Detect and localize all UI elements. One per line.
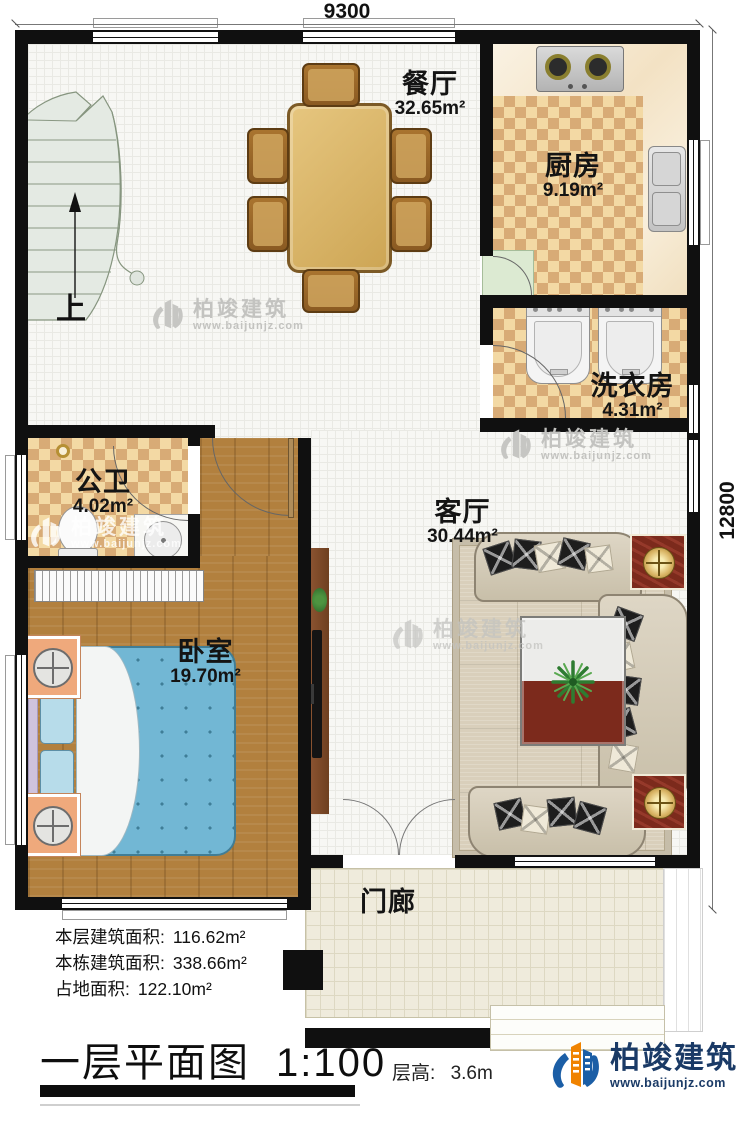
window: [515, 855, 655, 868]
sink-bowl: [652, 192, 681, 226]
stove-burner: [545, 54, 571, 80]
stove-burner: [585, 54, 611, 80]
wall: [15, 425, 215, 438]
window: [687, 440, 700, 512]
wall: [480, 295, 700, 308]
window-sill: [5, 455, 15, 540]
wall: [298, 438, 311, 910]
table-lamp-icon: [33, 806, 73, 846]
floor-plan-page: 上: [0, 0, 750, 1122]
dimension-right: 12800: [716, 443, 740, 578]
window: [15, 455, 28, 540]
room-label-bedroom: 卧室19.70m²: [148, 638, 263, 687]
dining-chair: [302, 269, 360, 313]
stove-knob: [568, 84, 573, 89]
room-label-porch: 门廊: [343, 888, 433, 916]
plan-scale: 1:100: [276, 1041, 386, 1085]
plant-icon: [549, 658, 597, 706]
shower-head-icon: [56, 444, 70, 458]
porch-side-steps: [663, 868, 703, 1032]
dining-chair: [247, 196, 289, 252]
dimension-top: 9300: [287, 0, 407, 24]
window-sill: [700, 140, 710, 245]
porch-pillar: [283, 950, 323, 990]
cabinet-plant-icon: [312, 588, 327, 612]
window: [303, 30, 455, 44]
room-label-laundry: 洗衣房4.31m²: [570, 372, 695, 421]
stairs: [18, 90, 168, 322]
window-sill: [62, 910, 287, 920]
dining-chair: [247, 128, 289, 184]
window-sill: [5, 655, 15, 845]
floor-height: 层高: 3.6m: [392, 1058, 493, 1085]
wall: [480, 308, 493, 345]
stat-floor-area: 本层建筑面积:116.62m²: [55, 924, 247, 950]
sofa-pillow: [547, 797, 578, 828]
window: [15, 655, 28, 845]
stove-knob: [582, 84, 587, 89]
stat-building-area: 本栋建筑面积:338.66m²: [55, 950, 247, 976]
wall: [15, 556, 200, 568]
dining-chair: [390, 128, 432, 184]
room-label-bathroom: 公卫4.02m²: [48, 468, 158, 517]
wall: [218, 30, 303, 44]
basin-drain: [161, 538, 166, 543]
room-label-dining: 餐厅32.65m²: [365, 70, 495, 119]
gold-lamp-icon: [643, 547, 675, 579]
wall: [455, 30, 700, 44]
wall: [188, 438, 200, 446]
sofa-pillow: [608, 742, 639, 773]
room-label-kitchen: 厨房9.19m²: [513, 152, 633, 201]
dining-chair: [302, 63, 360, 107]
window: [93, 30, 218, 44]
stairs-up-label: 上: [56, 284, 86, 328]
sink-bowl: [652, 152, 681, 186]
brand-name: 柏竣建筑: [610, 1044, 738, 1074]
brand-website: www.baijunjz.com: [610, 1077, 738, 1090]
area-stats: 本层建筑面积:116.62m² 本栋建筑面积:338.66m² 占地面积:122…: [55, 924, 247, 1002]
window-sill: [93, 18, 218, 28]
brand-footer: 柏竣建筑 www.baijunjz.com: [548, 1040, 738, 1094]
gold-lamp-icon: [644, 787, 676, 819]
dimension-line-top: [15, 24, 700, 25]
window: [687, 140, 700, 245]
window: [62, 897, 287, 910]
table-lamp-icon: [33, 648, 73, 688]
title-underline-bar: [40, 1085, 355, 1097]
room-label-living: 客厅30.44m²: [400, 498, 525, 547]
wardrobe-hanger-rack: [34, 570, 204, 602]
dimension-line-right: [712, 30, 713, 910]
dining-chair: [390, 196, 432, 252]
dining-table: [287, 103, 392, 273]
sofa-pillow: [584, 544, 613, 573]
title-underline-thin: [40, 1104, 360, 1106]
bedroom-door-leaf: [288, 438, 294, 518]
stat-footprint: 占地面积:122.10m²: [55, 976, 247, 1002]
sofa-pillow: [520, 804, 550, 834]
brand-logo-icon: [548, 1040, 604, 1094]
plan-title: 一层平面图1:100: [40, 1030, 386, 1088]
